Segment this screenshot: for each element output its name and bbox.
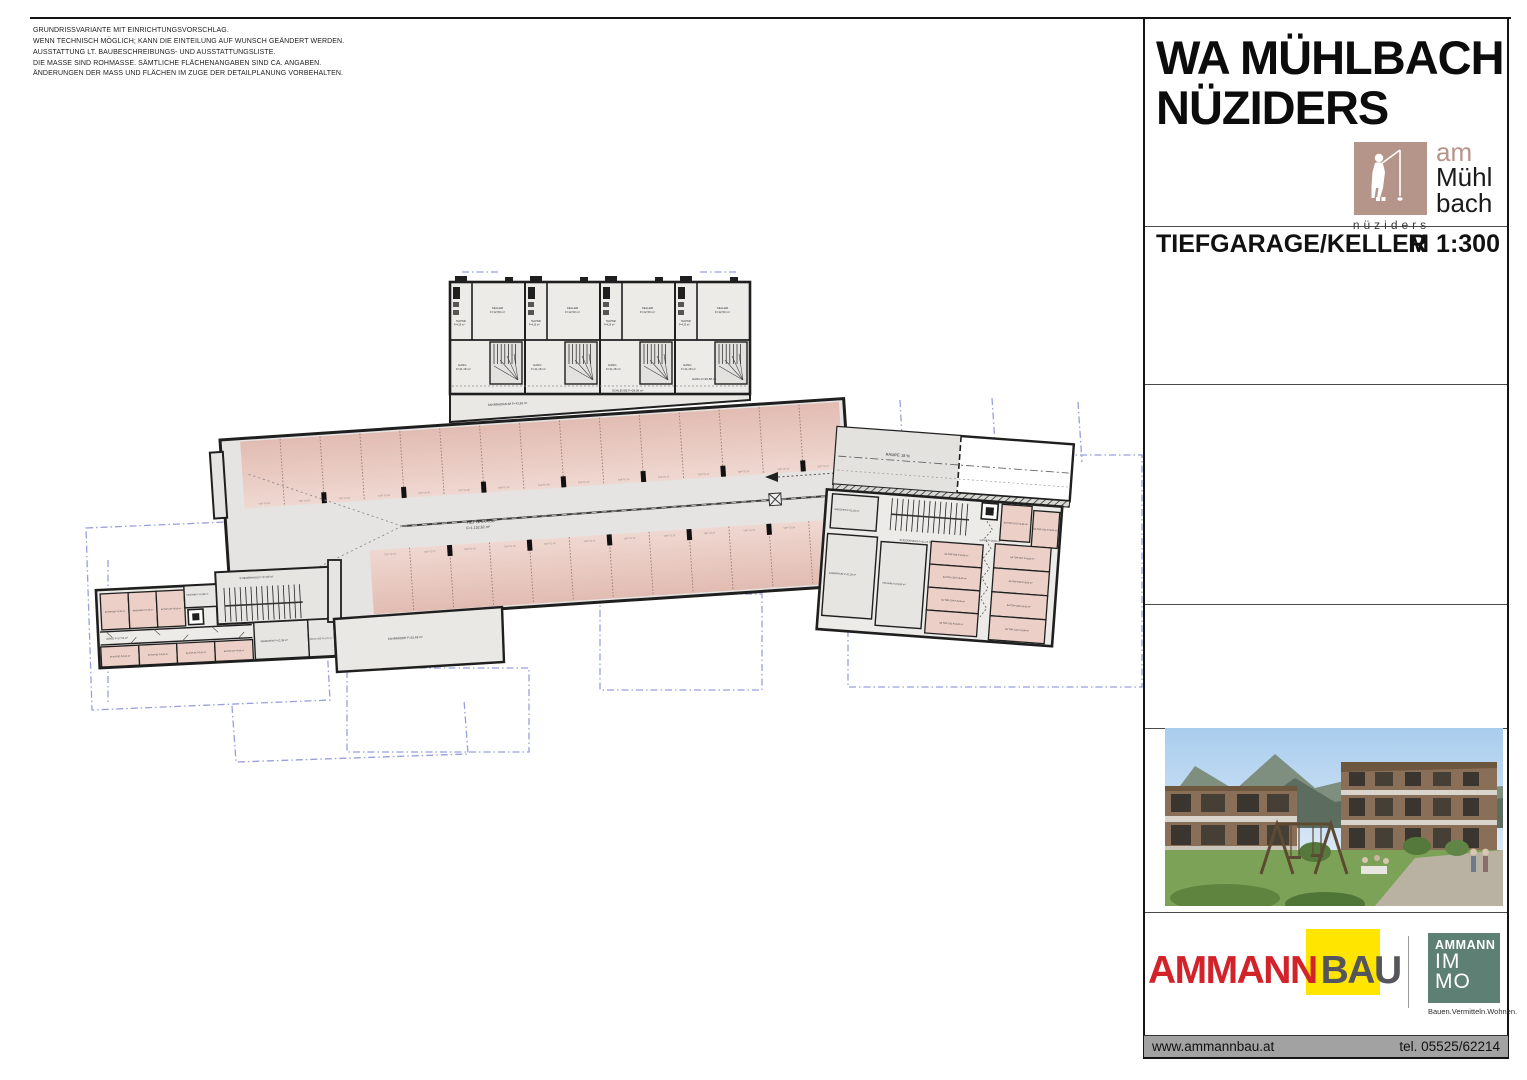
plan-sheet: { "notes": { "lines": [ "GRUNDRISSVARIAN… [0, 0, 1527, 1080]
plan-name: TIEFGARAGE/KELLER [1156, 230, 1427, 258]
parking-stall [529, 537, 573, 604]
parking-stall [489, 540, 533, 607]
parking-stall [599, 415, 643, 485]
project-title: WA MÜHLBACH NÜZIDERS [1156, 33, 1504, 133]
footer-phone: tel. 05525/62214 [1399, 1039, 1500, 1054]
footer-website[interactable]: www.ammannbau.at [1152, 1039, 1274, 1054]
ammann-immo-logo: AMMANN IM MO Bauen.Vermitteln.Wohnen. [1428, 933, 1504, 1016]
ammannbau-logo: AMMANNBAU [1148, 929, 1380, 999]
garage-column [607, 534, 613, 545]
garage-column [720, 466, 726, 477]
parking-stall [719, 407, 763, 477]
left-lift [188, 609, 204, 625]
right-lift [981, 503, 998, 520]
parking-stall [440, 426, 484, 496]
project-rendering-photo [1165, 728, 1503, 906]
parking-stall [609, 532, 653, 599]
parking-stall [729, 524, 773, 591]
parking-stall [320, 434, 364, 504]
gang-top-label: GANG F=20,88 m² [692, 377, 716, 381]
parking-stall [370, 548, 414, 615]
svg-text:TECHNIK: TECHNIK [456, 321, 467, 323]
svg-text:F=12,50 m²: F=12,50 m² [490, 310, 505, 314]
parking-stall [569, 534, 613, 601]
ammann-immo-tagline: Bauen.Vermitteln.Wohnen. [1428, 1007, 1504, 1016]
plan-name-row: TIEFGARAGE/KELLER M 1:300 [1156, 230, 1500, 259]
plan-scale: M 1:300 [1408, 230, 1500, 259]
ammannbau-wordmark-ammann: AMMANN [1148, 949, 1317, 992]
parking-stall [649, 529, 693, 596]
parking-stall [449, 542, 493, 609]
parking-stall [520, 420, 564, 490]
parking-stall [410, 545, 454, 612]
am-muehlbach-logo: nüziders am Mühl bach [1354, 142, 1504, 227]
parking-stall [759, 405, 803, 475]
ammann-immo-square: AMMANN IM MO [1428, 933, 1500, 1003]
am-muehlbach-logo-square [1354, 142, 1427, 215]
ammannbau-wordmark-bau: BAU [1321, 949, 1401, 992]
left-cellar-rooms-top: 6A TOP B3 F=5,22 m²WASCHEN F=4,78 m²6A T… [100, 590, 186, 630]
unit-stair [490, 342, 522, 384]
parking-stall [769, 521, 813, 588]
parking-stall [280, 436, 324, 506]
right-wing: RAMPE 18 % WASCHEN F=11,82 m² STIEGENHAU… [817, 427, 1074, 647]
left-wing: 6A TOP B3 F=5,22 m²WASCHEN F=4,78 m²6A T… [95, 567, 335, 668]
garage-column [640, 471, 646, 482]
parking-stall [400, 428, 444, 498]
garage-column [686, 529, 692, 540]
panel-divider [1145, 912, 1507, 913]
parking-stall [480, 423, 524, 493]
parking-stall [689, 526, 733, 593]
garage-column [561, 476, 567, 487]
parking-stall [240, 439, 284, 509]
garage-column [447, 545, 453, 556]
top-units-block: FAHRRADRAUM F=43,93 m² TECHNIK F=4,20 m²… [450, 276, 750, 422]
panel-divider [1145, 384, 1507, 385]
fisher-boy-icon [1354, 142, 1427, 215]
am-muehlbach-logo-wordmark: am Mühl bach [1436, 140, 1492, 216]
garage-column [401, 487, 407, 498]
parking-stall [639, 413, 683, 483]
parking-stall [679, 410, 723, 480]
parking-stall [360, 431, 404, 501]
garage-column [527, 540, 533, 551]
svg-text:F=11,18 m²: F=11,18 m² [456, 367, 471, 371]
garage-column [481, 481, 487, 492]
panel-divider [1145, 604, 1507, 605]
garage-column [800, 460, 806, 471]
garage-column [766, 524, 772, 535]
svg-text:F=4,20 m²: F=4,20 m² [454, 323, 465, 326]
link-corridor [328, 560, 341, 622]
footer-bar: www.ammannbau.at tel. 05525/62214 [1144, 1035, 1508, 1057]
parking-stall [559, 418, 603, 488]
logo-divider [1408, 936, 1409, 1008]
garage-column [321, 492, 327, 503]
bicycle-room: FAHRRÄDER F=31,68 m² [334, 607, 504, 672]
schleuse-label: SCHLEUSE F=29,06 m² [612, 389, 643, 393]
